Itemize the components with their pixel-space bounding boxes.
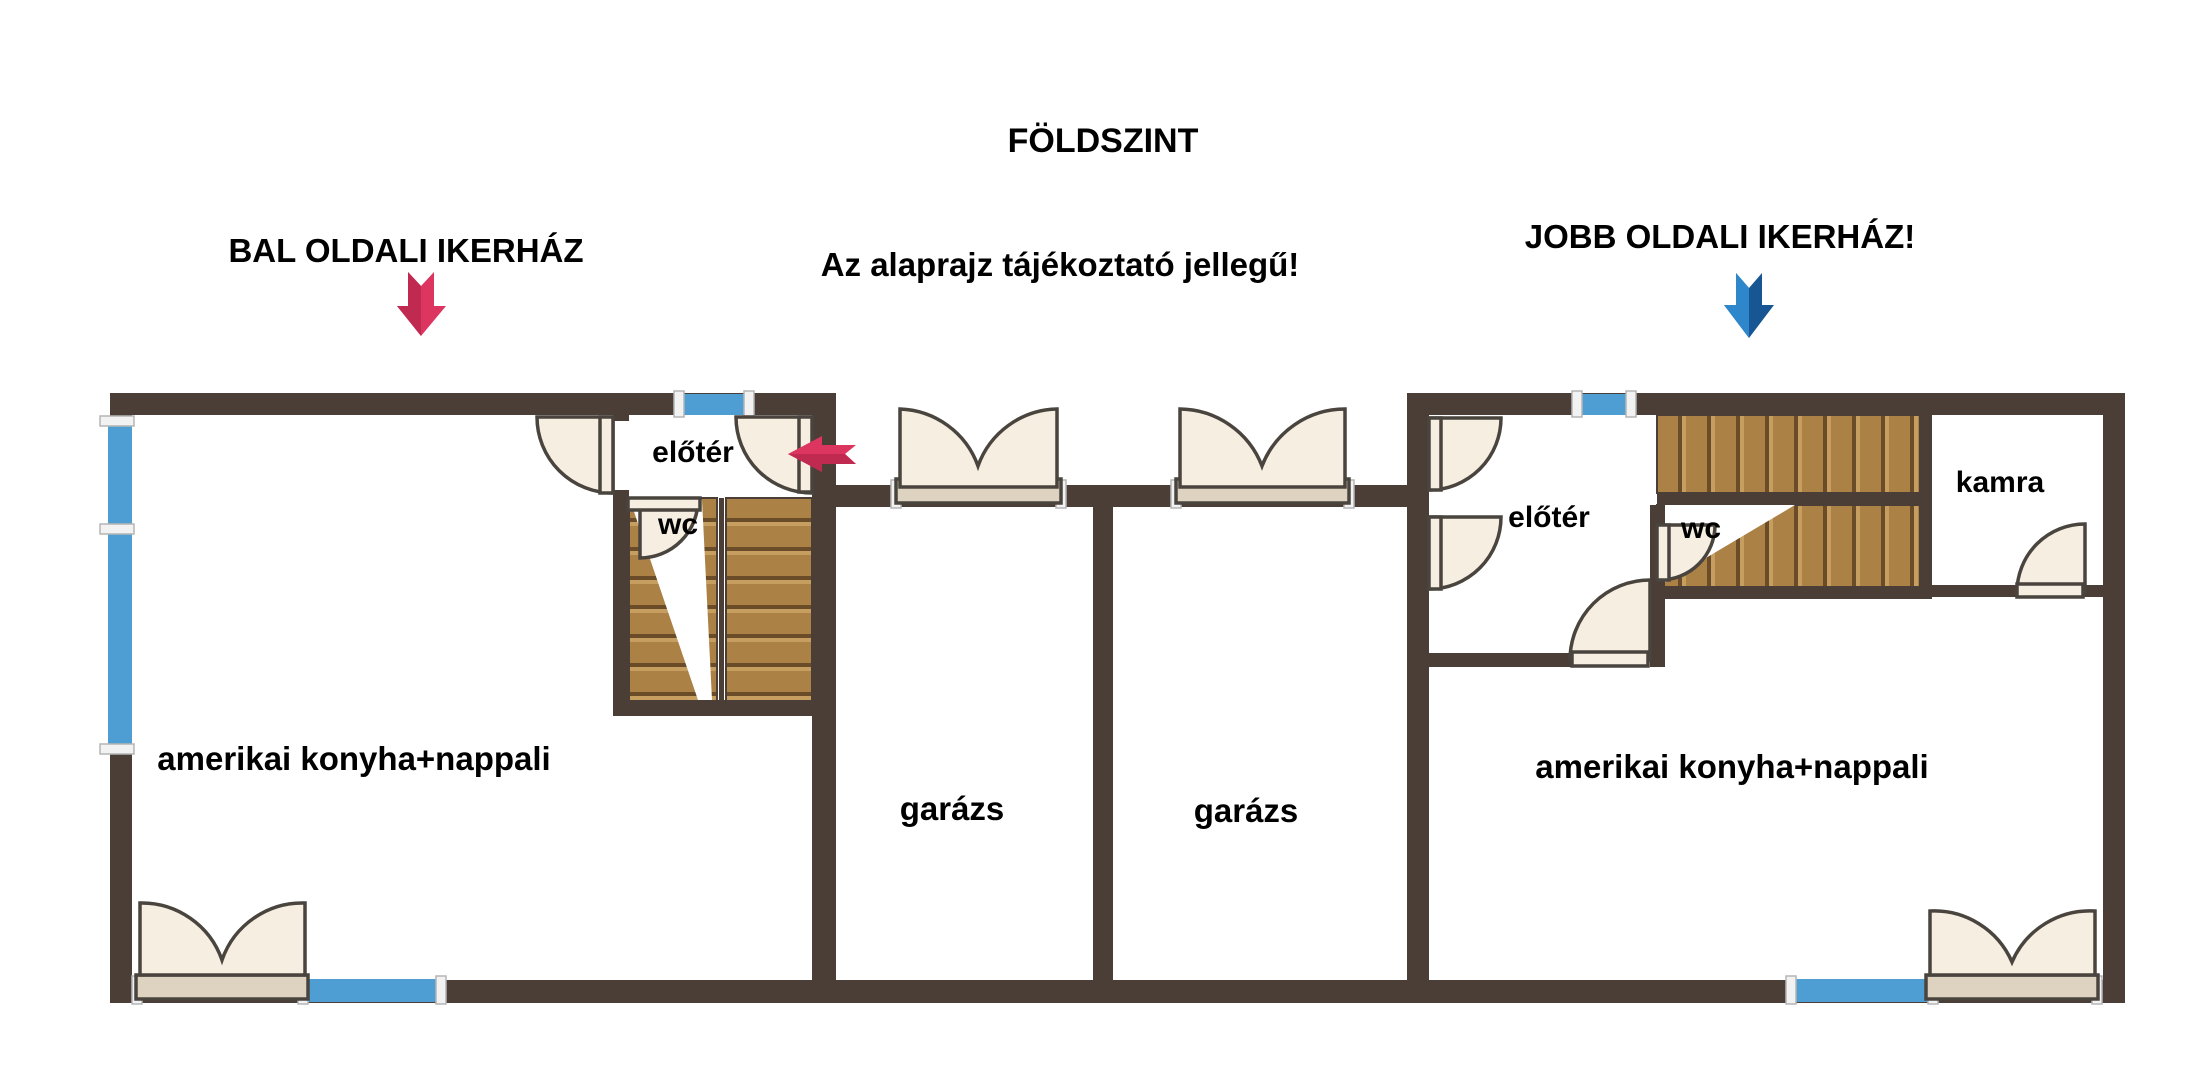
window-left-2	[108, 532, 132, 746]
wall-top-right-house	[1407, 393, 2125, 415]
left-house-arrow-icon	[397, 272, 446, 336]
floor-plan-page: FÖLDSZINT BAL OLDALI IKERHÁZ Az alaprajz…	[0, 0, 2200, 1080]
window-left-hall	[683, 394, 745, 415]
door-leaf	[1657, 525, 1669, 580]
wall-party-left	[812, 393, 836, 1003]
right-house-arrow-shade	[1724, 273, 1749, 338]
wall-pantry-bottom-a	[1932, 585, 2017, 597]
window-right-hall	[1581, 394, 1627, 415]
disclaimer-note: Az alaprajz tájékoztató jellegű!	[821, 246, 1300, 283]
stair-flight	[1657, 415, 1920, 493]
right-house-heading: JOBB OLDALI IKERHÁZ!	[1525, 218, 1916, 255]
wall-stairs-middle	[1657, 493, 1920, 505]
room-label-right-hall: előtér	[1508, 501, 1590, 534]
door-leaf	[1429, 517, 1441, 589]
pantry-door	[2017, 524, 2085, 592]
wall-left-hall	[613, 490, 629, 716]
door-leaf	[1572, 652, 1648, 666]
garage-left-door	[900, 409, 1057, 487]
wall-right-outer	[2103, 393, 2125, 1003]
room-label-pantry: kamra	[1956, 466, 2045, 499]
right-terrace-door	[1930, 911, 2095, 975]
wall-party-right	[1407, 393, 1429, 1003]
room-label-right-wc: wc	[1680, 512, 1721, 545]
wall-right-hall-bottom	[1429, 653, 1572, 667]
room-label-left-living: amerikai konyha+nappali	[157, 740, 550, 777]
garage-right-door	[1180, 409, 1345, 487]
page-title: FÖLDSZINT	[1008, 122, 1199, 160]
wall-stairs-pantry	[1920, 415, 1932, 599]
room-label-left-hall: előtér	[652, 436, 734, 469]
left-house-arrow-shade	[397, 272, 421, 336]
left-house-heading: BAL OLDALI IKERHÁZ	[228, 232, 583, 269]
wall-left-stairs-bottom	[613, 700, 836, 716]
wall-left-hall-stub	[613, 411, 629, 421]
room-label-right-living: amerikai konyha+nappali	[1535, 748, 1928, 785]
room-label-garage-left: garázs	[900, 790, 1005, 827]
stair-flight	[726, 498, 812, 702]
door-leaf	[2017, 584, 2083, 597]
window-bottom-left	[307, 979, 437, 1002]
left-terrace-door	[140, 903, 305, 975]
window-bottom-right	[1795, 979, 1928, 1002]
room-label-left-wc: wc	[657, 508, 698, 541]
right-hall-door	[1570, 580, 1650, 660]
door-leaf	[1429, 418, 1441, 490]
floor-plan-drawing: FÖLDSZINT BAL OLDALI IKERHÁZ Az alaprajz…	[0, 0, 2200, 1080]
window-left-1	[108, 425, 132, 528]
wall-stair-divider	[719, 498, 724, 700]
terrace-door-sill	[136, 975, 308, 999]
door-leaf	[600, 417, 613, 493]
room-label-garage-right: garázs	[1194, 792, 1299, 829]
wall-stairs-bottom-right	[1650, 587, 1932, 599]
terrace-door-sill	[1926, 975, 2098, 999]
wall-garage-divider	[1093, 507, 1113, 982]
